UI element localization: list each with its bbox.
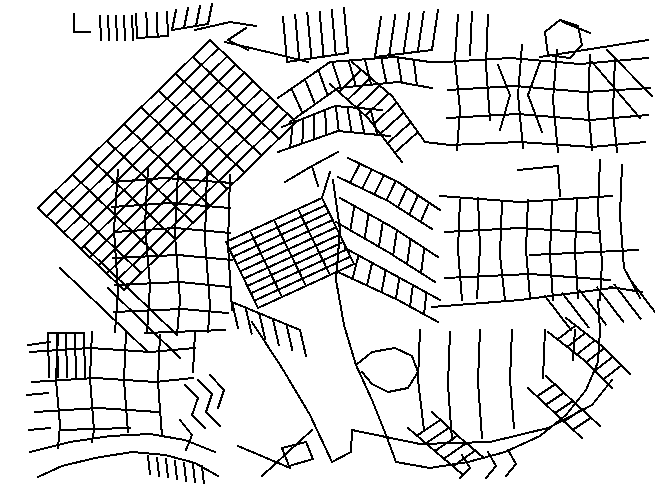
ladder-rung	[305, 79, 315, 104]
ladder-rung	[352, 255, 358, 278]
road-segment	[396, 362, 598, 468]
road-segment	[500, 202, 505, 300]
comb-tooth	[124, 16, 125, 40]
ladder-rung	[367, 263, 372, 286]
road-segment	[553, 50, 558, 152]
road-segment	[563, 22, 590, 33]
comb-base	[137, 36, 168, 38]
street-map	[0, 0, 655, 484]
road-segment	[322, 172, 330, 198]
ladder-rung	[546, 393, 564, 405]
road-segment	[510, 330, 514, 428]
comb-tooth	[246, 308, 252, 334]
road-segment	[518, 166, 560, 196]
ladder-rung	[409, 195, 418, 214]
comb-base	[232, 302, 300, 330]
road-segment	[262, 430, 312, 476]
road-segment	[613, 58, 617, 152]
road-segment	[180, 420, 192, 450]
comb-tooth	[157, 13, 158, 37]
comb-tooth	[332, 10, 336, 55]
comb-tooth	[184, 463, 186, 481]
road-segment	[530, 250, 638, 255]
ladder-rung	[347, 107, 351, 132]
road-segment	[205, 170, 210, 332]
road-segment	[27, 393, 48, 395]
comb-tooth	[432, 10, 438, 50]
comb-tooth	[295, 15, 299, 60]
road-segment	[28, 342, 50, 345]
ladder-rail	[278, 131, 390, 152]
road-segment	[448, 332, 452, 440]
road-segment	[573, 330, 575, 360]
road-segment	[312, 166, 318, 186]
road-segment	[74, 14, 90, 32]
comb-tooth	[66, 333, 67, 377]
ladder-rung	[414, 60, 417, 86]
ladder-rung	[577, 340, 595, 354]
road-segment	[540, 40, 648, 57]
road-segment	[29, 428, 50, 430]
road-segment	[210, 375, 224, 408]
comb-tooth	[418, 12, 424, 52]
road-segment	[620, 165, 624, 268]
ladder-rung	[426, 428, 449, 444]
comb-tooth	[320, 12, 324, 57]
ladder-rung	[537, 384, 555, 396]
comb-tooth	[157, 458, 159, 476]
comb-tooth	[286, 324, 292, 350]
road-segment	[477, 198, 480, 298]
comb-tooth	[116, 16, 117, 40]
comb-tooth	[172, 10, 176, 30]
ladder-rung	[421, 203, 429, 222]
comb-tooth	[132, 16, 133, 40]
ladder-rung	[318, 70, 327, 95]
ladder-rung	[603, 365, 621, 379]
road-segment	[448, 86, 650, 92]
road-segment	[145, 330, 225, 333]
road-segment	[588, 55, 592, 150]
ladder-rung	[350, 164, 360, 183]
road-segment	[112, 178, 232, 183]
ladder-rung	[421, 248, 424, 273]
ladder-rung	[407, 239, 410, 264]
comb-tooth	[196, 6, 200, 26]
road-segment	[624, 268, 640, 298]
ladder-rung	[365, 214, 369, 239]
ladder-rung	[302, 118, 303, 143]
road-segment	[440, 196, 612, 202]
comb-tooth	[404, 14, 410, 54]
street-map-canvas	[0, 0, 655, 484]
road-segment	[518, 45, 523, 148]
ladder-rung	[332, 62, 340, 88]
road-segment	[198, 380, 220, 426]
ladder-rung	[381, 270, 385, 292]
comb-tooth	[166, 459, 168, 477]
ladder-rung	[417, 420, 441, 436]
comb-tooth	[75, 333, 76, 377]
comb-tooth	[84, 333, 85, 377]
ladder-rung	[573, 418, 591, 430]
road-segment	[228, 175, 232, 310]
ladder-rung	[387, 181, 396, 200]
road-segment	[478, 330, 482, 438]
road-segment	[526, 200, 530, 298]
road-segment	[575, 200, 578, 298]
comb-tooth	[580, 290, 606, 324]
comb-tooth	[208, 4, 212, 24]
ladder-rung	[325, 110, 327, 135]
road-segment	[185, 385, 205, 428]
ladder-rung	[362, 169, 372, 188]
ladder-rung	[374, 175, 383, 194]
road-segment	[124, 333, 128, 432]
comb-tooth	[184, 8, 188, 28]
comb-tooth	[545, 296, 571, 330]
ladder-rung	[586, 348, 604, 362]
road-segment	[543, 330, 545, 378]
ladder-rung	[396, 278, 399, 299]
comb-tooth	[108, 16, 109, 40]
road-segment	[252, 322, 332, 462]
road-segment	[195, 22, 256, 30]
road-segment	[506, 450, 516, 476]
road-segment	[470, 12, 472, 55]
road-segment	[175, 172, 180, 335]
comb-tooth	[167, 12, 168, 36]
road-segment	[113, 255, 232, 260]
comb-tooth	[389, 15, 395, 55]
comb-tooth	[300, 330, 306, 356]
comb-tooth	[232, 302, 238, 328]
road-segment	[60, 428, 130, 430]
road-segment	[193, 332, 195, 372]
ladder-rung	[381, 58, 386, 83]
road-segment	[332, 431, 352, 462]
road-segment	[418, 330, 424, 430]
comb-tooth	[193, 464, 195, 482]
ladder-rung	[379, 222, 383, 247]
road-segment	[56, 335, 60, 448]
road-segment	[486, 15, 490, 120]
comb-tooth	[175, 461, 177, 479]
road-segment	[447, 114, 648, 120]
comb-tooth	[100, 16, 101, 40]
comb-tooth	[344, 8, 348, 53]
road-segment	[38, 452, 218, 477]
ladder-rung	[398, 57, 402, 82]
comb-tooth	[136, 14, 137, 38]
ladder-rung	[558, 325, 576, 339]
comb-tooth	[146, 13, 147, 37]
road-segment	[458, 200, 462, 300]
comb-tooth	[307, 13, 311, 58]
ladder-rung	[291, 89, 302, 113]
road-segment	[333, 180, 396, 462]
road-segment	[145, 168, 150, 333]
ladder-rung	[567, 333, 585, 347]
road-segment	[528, 62, 542, 132]
road-segment	[550, 202, 553, 300]
road-segment	[425, 142, 450, 145]
ladder-rung	[336, 106, 339, 131]
road-segment	[35, 408, 158, 412]
ladder-rung	[350, 206, 354, 230]
comb-tooth	[375, 17, 381, 57]
comb-tooth	[48, 333, 49, 377]
road-segment	[84, 246, 176, 334]
road-segment	[455, 15, 460, 150]
road-segment	[498, 65, 510, 130]
ladder-rung	[395, 132, 418, 152]
ladder-rung	[410, 285, 413, 307]
comb-tooth	[562, 293, 588, 327]
ladder-rung	[393, 230, 397, 255]
ladder-rung	[398, 188, 407, 207]
ladder-rung	[424, 293, 426, 315]
comb-tooth	[273, 319, 279, 345]
comb-tooth	[148, 456, 150, 474]
